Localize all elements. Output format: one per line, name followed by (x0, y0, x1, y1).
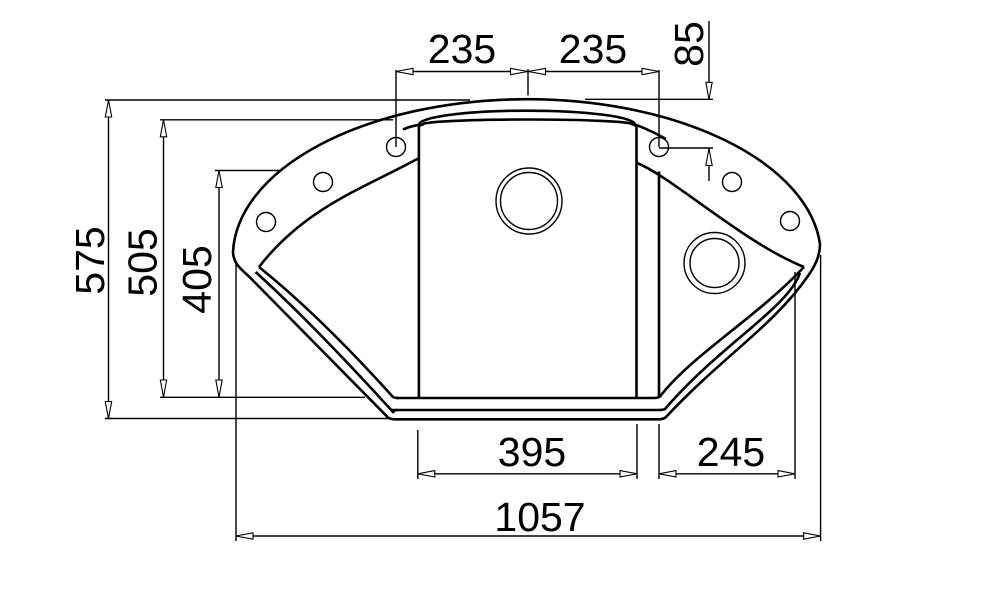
svg-text:235: 235 (428, 26, 496, 72)
svg-text:505: 505 (120, 228, 166, 296)
svg-text:405: 405 (174, 245, 220, 313)
svg-text:235: 235 (559, 26, 627, 72)
svg-text:85: 85 (666, 21, 712, 67)
svg-text:395: 395 (498, 429, 566, 475)
svg-text:1057: 1057 (494, 494, 585, 540)
svg-text:245: 245 (697, 429, 765, 475)
svg-text:575: 575 (67, 226, 113, 294)
